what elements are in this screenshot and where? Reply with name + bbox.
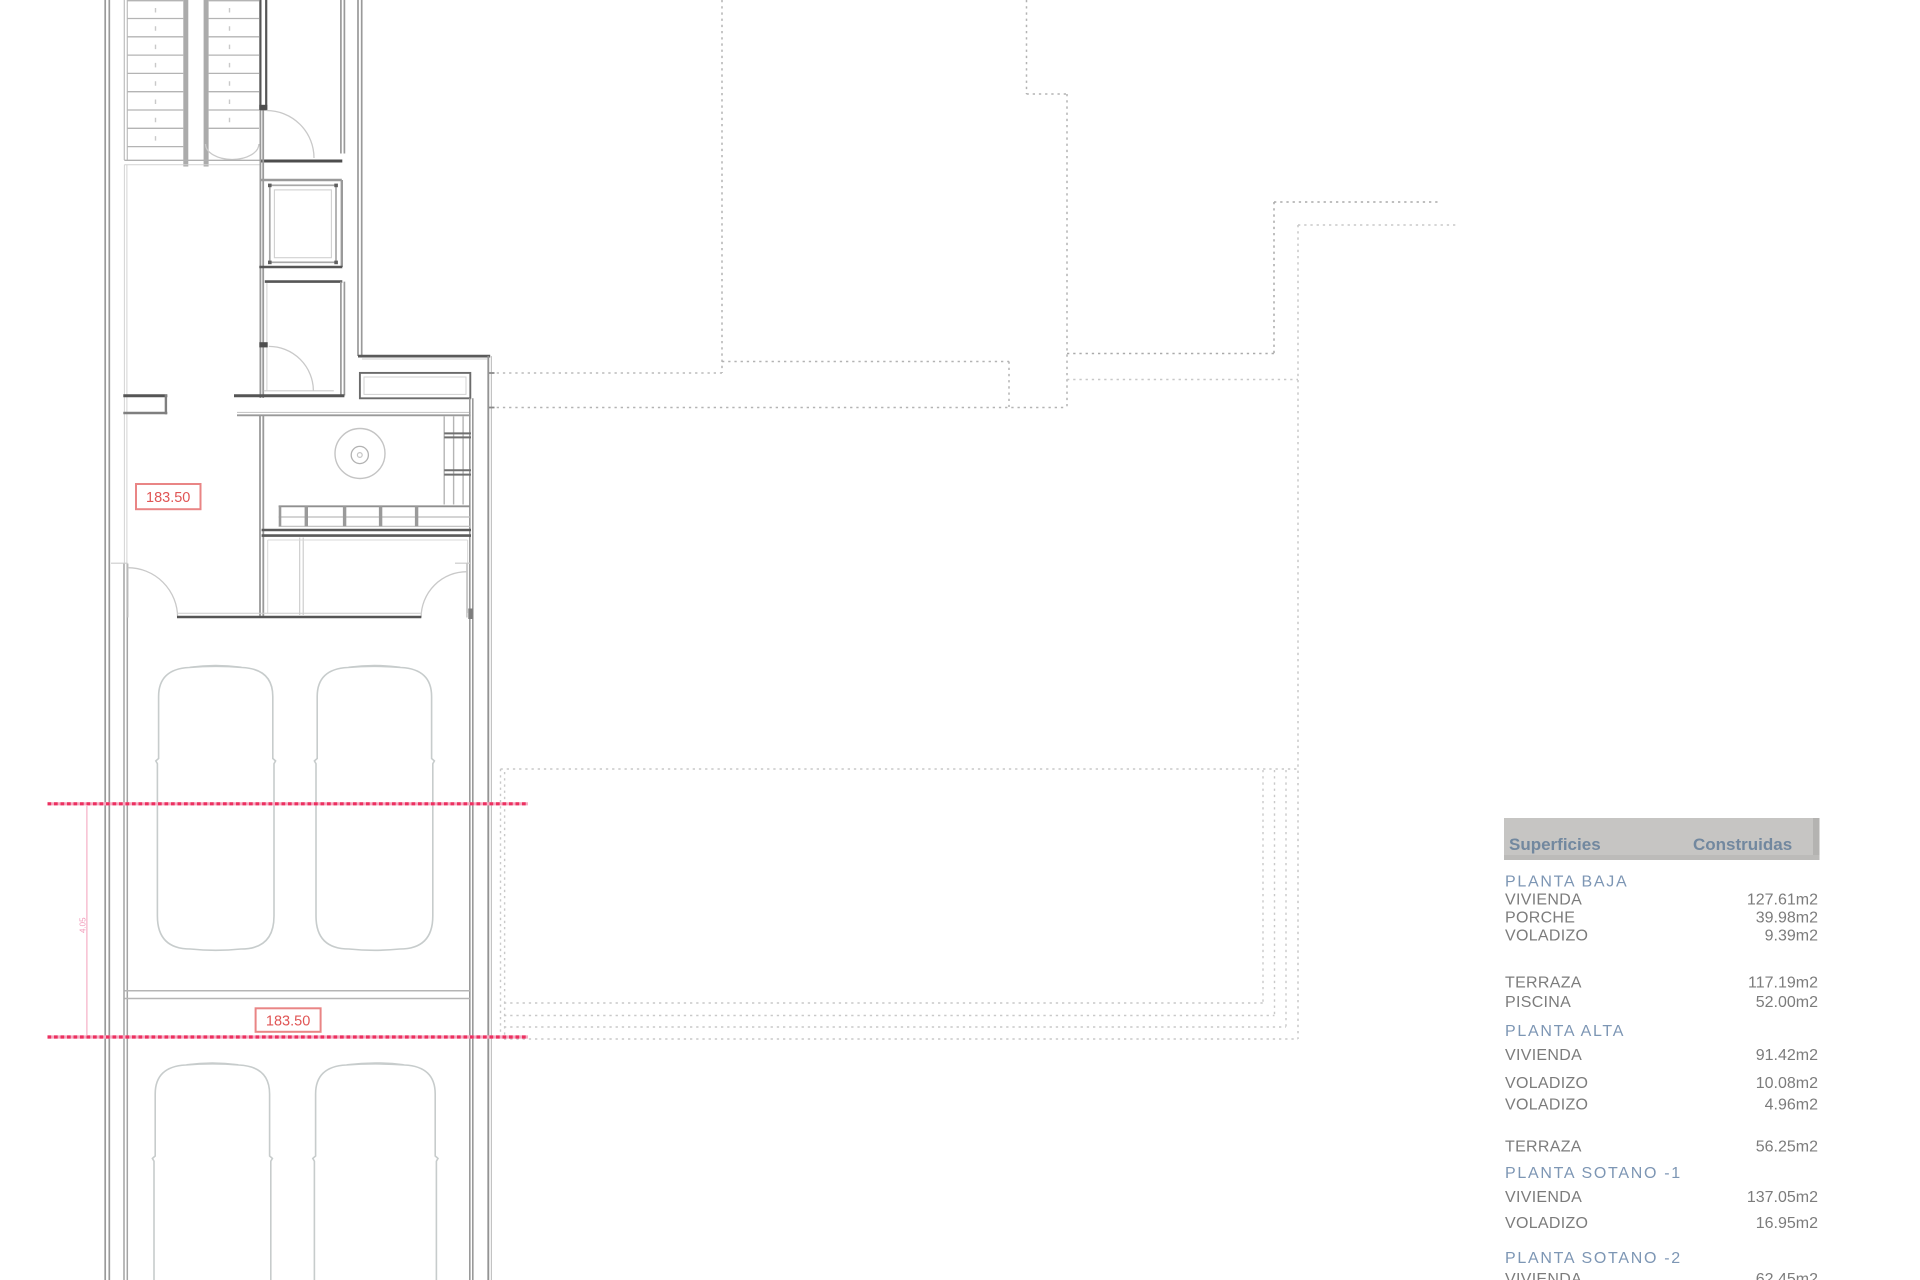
svg-text:52.00m2: 52.00m2 bbox=[1756, 994, 1818, 1011]
svg-text:VOLADIZO: VOLADIZO bbox=[1505, 1097, 1588, 1114]
svg-text:VOLADIZO: VOLADIZO bbox=[1505, 1075, 1588, 1092]
svg-text:Construidas: Construidas bbox=[1693, 835, 1792, 854]
svg-text:VIVIENDA: VIVIENDA bbox=[1505, 1189, 1582, 1206]
svg-text:PLANTA BAJA: PLANTA BAJA bbox=[1505, 874, 1628, 891]
svg-text:16.95m2: 16.95m2 bbox=[1756, 1215, 1818, 1232]
svg-text:10.08m2: 10.08m2 bbox=[1756, 1075, 1818, 1092]
svg-text:PORCHE: PORCHE bbox=[1505, 910, 1575, 927]
svg-text:183.50: 183.50 bbox=[266, 1014, 310, 1030]
svg-text:137.05m2: 137.05m2 bbox=[1747, 1189, 1818, 1206]
svg-text:PISCINA: PISCINA bbox=[1505, 994, 1571, 1011]
svg-text:VIVIENDA: VIVIENDA bbox=[1505, 892, 1582, 909]
svg-text:TERRAZA: TERRAZA bbox=[1505, 1139, 1582, 1156]
svg-text:9.39m2: 9.39m2 bbox=[1765, 928, 1818, 945]
svg-text:91.42m2: 91.42m2 bbox=[1756, 1047, 1818, 1064]
svg-text:56.25m2: 56.25m2 bbox=[1756, 1139, 1818, 1156]
svg-text:4.96m2: 4.96m2 bbox=[1765, 1097, 1818, 1114]
svg-text:183.50: 183.50 bbox=[146, 490, 190, 506]
svg-text:PLANTA SOTANO -2: PLANTA SOTANO -2 bbox=[1505, 1250, 1682, 1267]
svg-text:TERRAZA: TERRAZA bbox=[1505, 975, 1582, 992]
svg-text:127.61m2: 127.61m2 bbox=[1747, 892, 1818, 909]
svg-text:VIVIENDA: VIVIENDA bbox=[1505, 1047, 1582, 1064]
svg-text:PLANTA ALTA: PLANTA ALTA bbox=[1505, 1023, 1625, 1040]
svg-text:4.05: 4.05 bbox=[79, 917, 88, 933]
svg-text:PLANTA SOTANO -1: PLANTA SOTANO -1 bbox=[1505, 1165, 1682, 1182]
svg-text:VIVIENDA: VIVIENDA bbox=[1505, 1271, 1582, 1280]
svg-text:VOLADIZO: VOLADIZO bbox=[1505, 928, 1588, 945]
svg-text:117.19m2: 117.19m2 bbox=[1748, 975, 1818, 992]
svg-text:62.45m2: 62.45m2 bbox=[1756, 1271, 1818, 1280]
svg-text:VOLADIZO: VOLADIZO bbox=[1505, 1215, 1588, 1232]
svg-text:39.98m2: 39.98m2 bbox=[1756, 910, 1818, 927]
svg-text:Superficies: Superficies bbox=[1509, 835, 1601, 854]
